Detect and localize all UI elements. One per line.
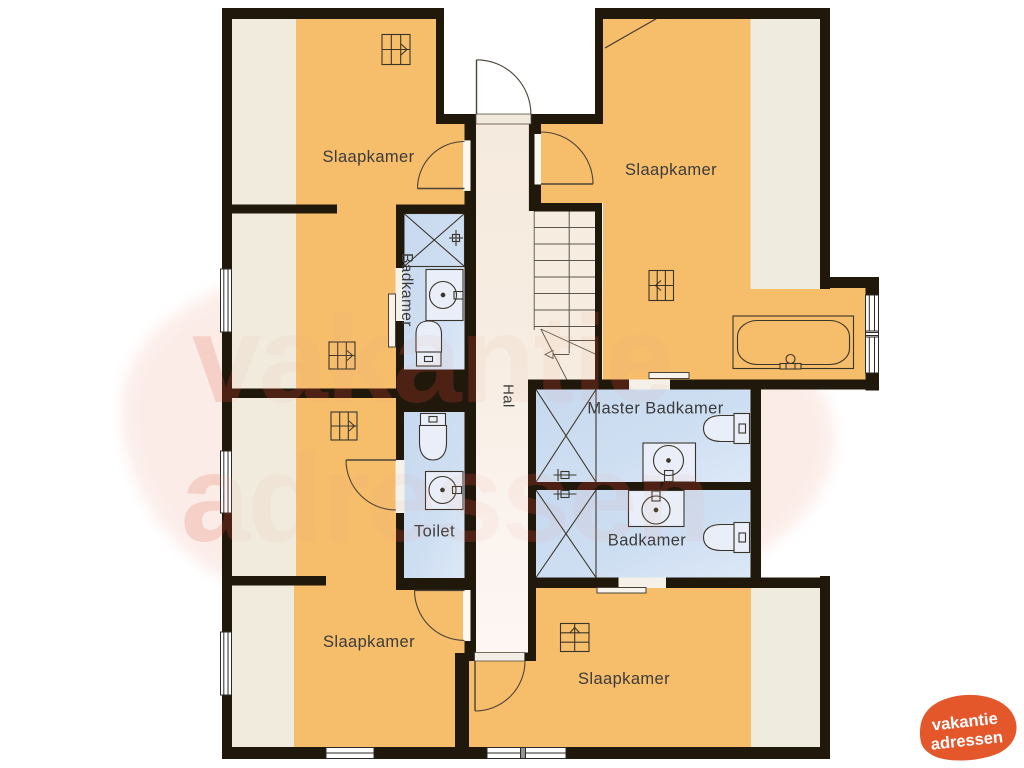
svg-text:Slaapkamer: Slaapkamer [578, 670, 670, 688]
svg-text:vakantie: vakantie [192, 291, 672, 429]
svg-text:Slaapkamer: Slaapkamer [322, 148, 414, 166]
svg-text:Slaapkamer: Slaapkamer [625, 161, 717, 179]
svg-text:Slaapkamer: Slaapkamer [323, 633, 415, 651]
svg-text:adressen: adressen [181, 430, 710, 568]
